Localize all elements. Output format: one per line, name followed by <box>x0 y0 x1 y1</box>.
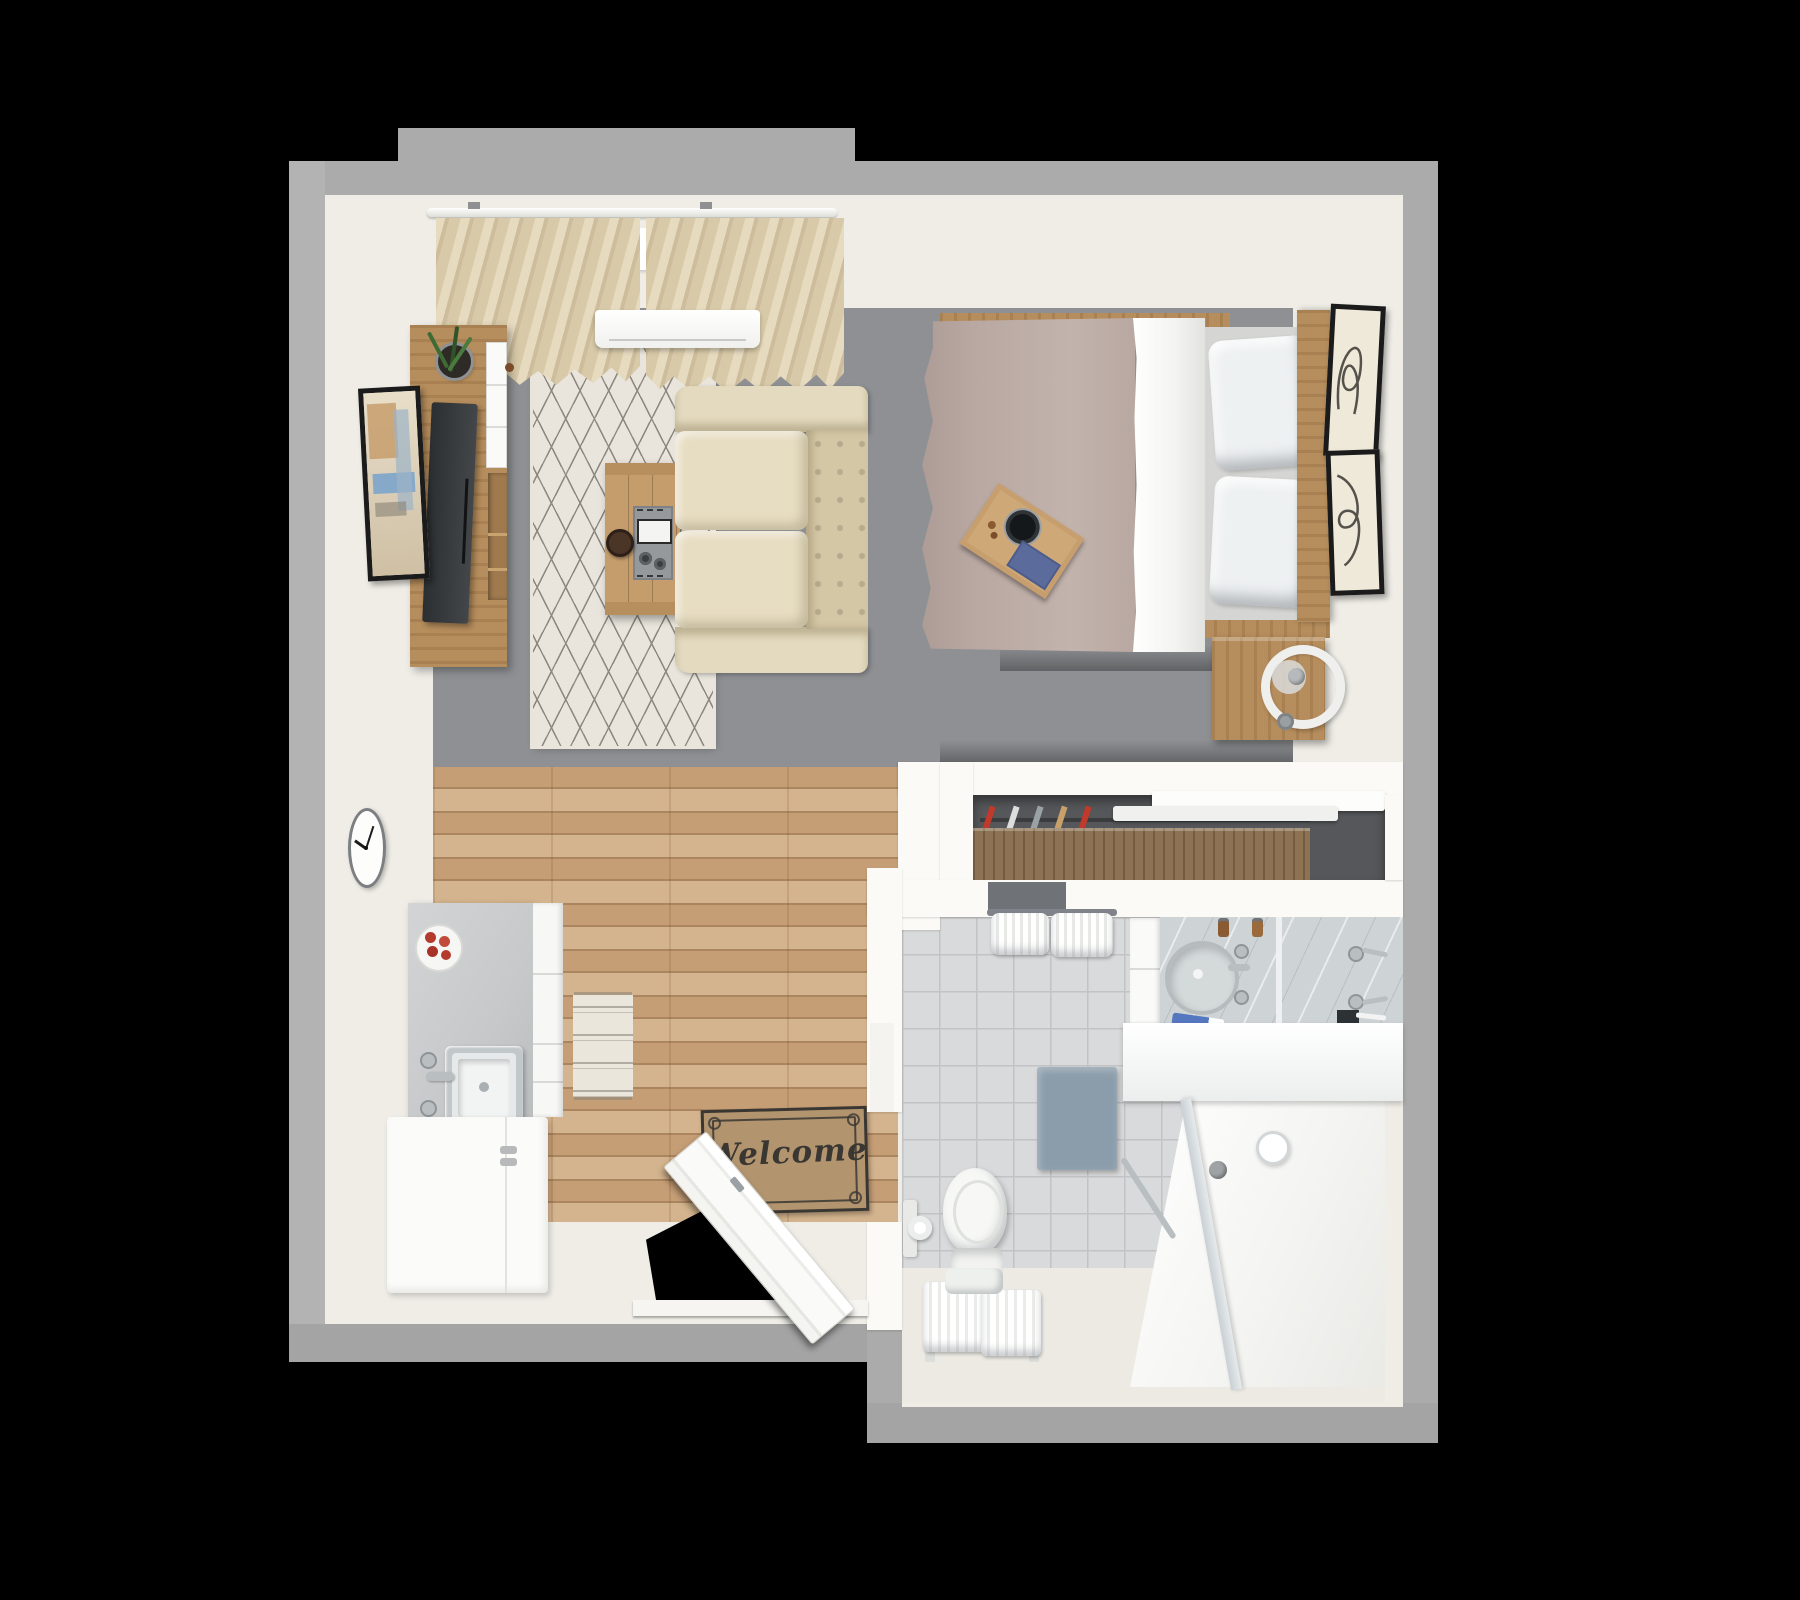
sofa-arm-bottom <box>675 627 868 673</box>
towel-bench <box>923 1268 1047 1362</box>
door-handle <box>729 1176 745 1193</box>
print-squiggle <box>1331 455 1369 581</box>
faucet-handle <box>420 1100 437 1117</box>
tv-screen <box>422 402 478 624</box>
sofa-arm-top <box>675 386 868 432</box>
tray-cookie <box>986 519 997 530</box>
cabinet-seam <box>533 1043 563 1045</box>
wall-ac-unit <box>595 310 760 348</box>
vanity-faucet <box>1228 964 1250 971</box>
floor-plan-scene: Welcome <box>0 0 1800 1600</box>
bench-headrest <box>945 1268 1003 1294</box>
burner-knob-red <box>427 946 438 957</box>
cabinet-seam <box>533 1081 563 1083</box>
closet-wall-shadow <box>940 740 1293 764</box>
sink-drain <box>479 1082 489 1092</box>
sofa-seat-cushion <box>675 531 808 628</box>
console-shelves <box>488 473 507 600</box>
wall-closet-right-divider <box>1385 795 1403 880</box>
faucet-spout <box>426 1072 454 1081</box>
wall-closet-left-divider <box>940 762 973 883</box>
soap-bottle <box>1252 921 1263 937</box>
outer-wall-bathroom-bottom <box>867 1403 1438 1443</box>
faucet-handle <box>420 1052 437 1069</box>
sofa-back-cushion <box>806 430 868 629</box>
wall-frame-print <box>1325 449 1384 596</box>
bed-duvet <box>920 318 1135 652</box>
burner-knob-red <box>425 932 436 943</box>
fridge-handle <box>500 1146 517 1154</box>
vanity-sink-drain <box>1193 969 1203 979</box>
curtain-rod <box>427 208 837 217</box>
fridge <box>387 1117 548 1293</box>
toilet-seat-ring <box>953 1180 1003 1244</box>
tv-stand-bar <box>462 479 469 564</box>
shower-valve <box>1209 1161 1227 1179</box>
cabinet-seam <box>533 973 563 975</box>
outer-wall-right <box>1403 161 1438 1443</box>
tray-tablet <box>637 519 672 544</box>
drawer-seam <box>486 426 507 428</box>
vanity-drawer-seam <box>1130 968 1160 970</box>
tray-mug <box>654 558 666 570</box>
table-end-cap <box>605 463 680 475</box>
wall-painting <box>358 386 430 582</box>
lamp-bulb-sphere <box>1288 668 1305 685</box>
vanity-drawers <box>1130 918 1160 1024</box>
table-end-cap <box>605 602 680 615</box>
console-drawers <box>486 342 507 468</box>
sofa <box>675 386 868 673</box>
vanity-tap-handle <box>1234 990 1249 1005</box>
fridge-seam <box>505 1117 507 1293</box>
hanging-towel <box>991 913 1049 955</box>
burner-knob-red <box>441 950 451 960</box>
nightstand-cup <box>1277 713 1294 730</box>
curtain-rod-bracket <box>468 202 480 209</box>
outer-wall-left <box>289 161 325 1362</box>
wall-bathroom-north <box>867 880 1403 917</box>
shower-head <box>1256 1131 1290 1165</box>
fridge-handle <box>500 1158 517 1166</box>
vanity-tap-handle <box>1234 944 1249 959</box>
folded-towel <box>981 1290 1041 1356</box>
mat-corner-curl <box>849 1191 862 1204</box>
wall-frame-print <box>1323 304 1386 459</box>
side-coaster-cup <box>606 529 634 557</box>
curtain-panel-right <box>646 218 844 398</box>
stove-burner-plate <box>415 924 463 972</box>
drawer-seam <box>486 384 507 386</box>
mat-corner-curl <box>847 1113 860 1126</box>
painting-block-gray <box>375 501 407 517</box>
bathroom-door-jamb <box>870 1023 894 1112</box>
outer-wall-top-bump <box>398 128 855 195</box>
ac-vent-line <box>609 339 746 341</box>
bath-mat <box>1037 1067 1117 1170</box>
wall-bathroom-west-lower <box>867 1222 902 1330</box>
tray-dash <box>637 509 667 511</box>
mirror-cabinet-seam <box>1276 917 1282 1023</box>
closet-sliding-shelf <box>1113 806 1338 821</box>
vanity-counter-front <box>1123 1023 1403 1101</box>
bed-sheet-fold <box>1133 318 1205 652</box>
print-squiggle <box>1329 309 1371 443</box>
sofa-seat-cushion <box>675 431 808 530</box>
kitchen-tall-cabinet <box>533 903 563 1117</box>
table-tray <box>633 506 673 580</box>
curtain-rod-bracket <box>700 202 712 209</box>
closet-dresser <box>973 828 1310 880</box>
clock-center-dot <box>364 846 368 850</box>
shelf-line <box>488 568 507 571</box>
nightstand-lamp <box>1261 645 1345 729</box>
tray-mug <box>639 552 652 565</box>
shelf-line <box>488 533 507 536</box>
tray-dash <box>637 575 667 577</box>
vanity-sink <box>1165 941 1239 1015</box>
soap-bottle <box>1218 921 1229 937</box>
tray-cookie <box>989 531 999 541</box>
toilet-paper-roll <box>908 1216 932 1240</box>
burner-knob-red <box>439 936 450 947</box>
console-knob <box>505 363 514 372</box>
kitchen-runner-rug <box>573 995 633 1097</box>
wall-clock <box>348 808 386 888</box>
hanging-towel <box>1051 913 1113 957</box>
